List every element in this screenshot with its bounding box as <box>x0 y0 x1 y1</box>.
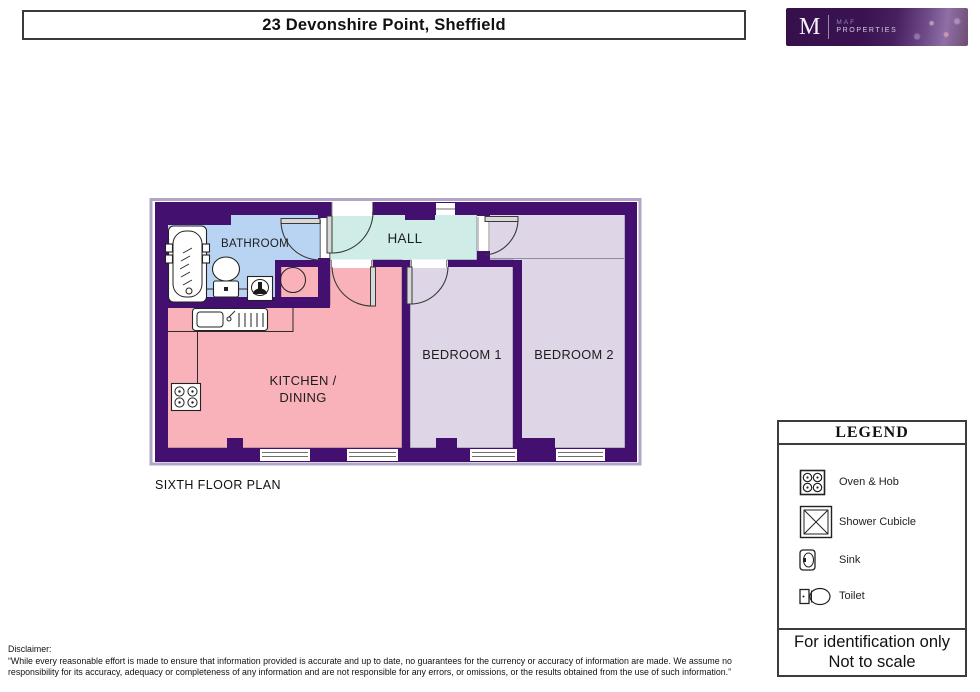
sink-icon <box>799 549 839 571</box>
legend-label-shower: Shower Cubicle <box>839 516 916 528</box>
kitchen-door-opening <box>331 260 372 269</box>
disclaimer-text: “While every reasonable effort is made t… <box>8 656 752 678</box>
floor-plan-caption: SIXTH FLOOR PLAN <box>155 478 281 492</box>
bedroom2-label: BEDROOM 2 <box>534 347 614 362</box>
kitchen-label-line2: DINING <box>279 390 326 405</box>
legend-row-sink: Sink <box>799 548 959 572</box>
legend-label-toilet: Toilet <box>839 590 865 602</box>
hall-label: HALL <box>388 231 423 246</box>
legend-row-toilet: Toilet <box>799 585 959 607</box>
legend-label-sink: Sink <box>839 554 860 566</box>
kitchen-window-left <box>260 449 310 461</box>
bathroom-label: BATHROOM <box>221 238 289 250</box>
bedroom1-window <box>470 449 517 461</box>
shower-cubicle-icon <box>799 505 839 539</box>
legend-label-oven-hob: Oven & Hob <box>839 476 899 488</box>
identification-note-line2: Not to scale <box>779 652 965 672</box>
front-door-opening <box>332 201 373 216</box>
kitchen-sink-icon <box>193 309 268 331</box>
legend-items: Oven & Hob Shower Cubicle <box>779 445 965 630</box>
legend-footer: For identification only Not to scale <box>779 628 965 675</box>
legend-row-shower: Shower Cubicle <box>799 504 959 540</box>
legend-row-oven-hob: Oven & Hob <box>799 468 959 496</box>
basin-icon <box>248 277 273 301</box>
disclaimer: Disclaimer: “While every reasonable effo… <box>8 644 752 678</box>
bathtub-icon <box>166 226 210 302</box>
oven-hob-icon <box>799 469 839 496</box>
floorplan-page: 23 Devonshire Point, Sheffield M MAF PRO… <box>0 0 980 692</box>
toilet-icon <box>799 586 839 607</box>
legend-title: LEGEND <box>779 422 965 445</box>
disclaimer-label: Disclaimer: <box>8 644 752 654</box>
bedroom2-window <box>556 449 605 461</box>
legend-box: LEGEND Oven & Hob <box>777 420 967 677</box>
kitchen-window-right <box>347 449 398 461</box>
identification-note-line1: For identification only <box>779 632 965 652</box>
oven-hob-plan-icon <box>172 384 201 411</box>
bedroom1-door-opening <box>411 260 447 269</box>
bedroom1-label: BEDROOM 1 <box>422 347 502 362</box>
kitchen-label-line1: KITCHEN / <box>270 373 337 388</box>
